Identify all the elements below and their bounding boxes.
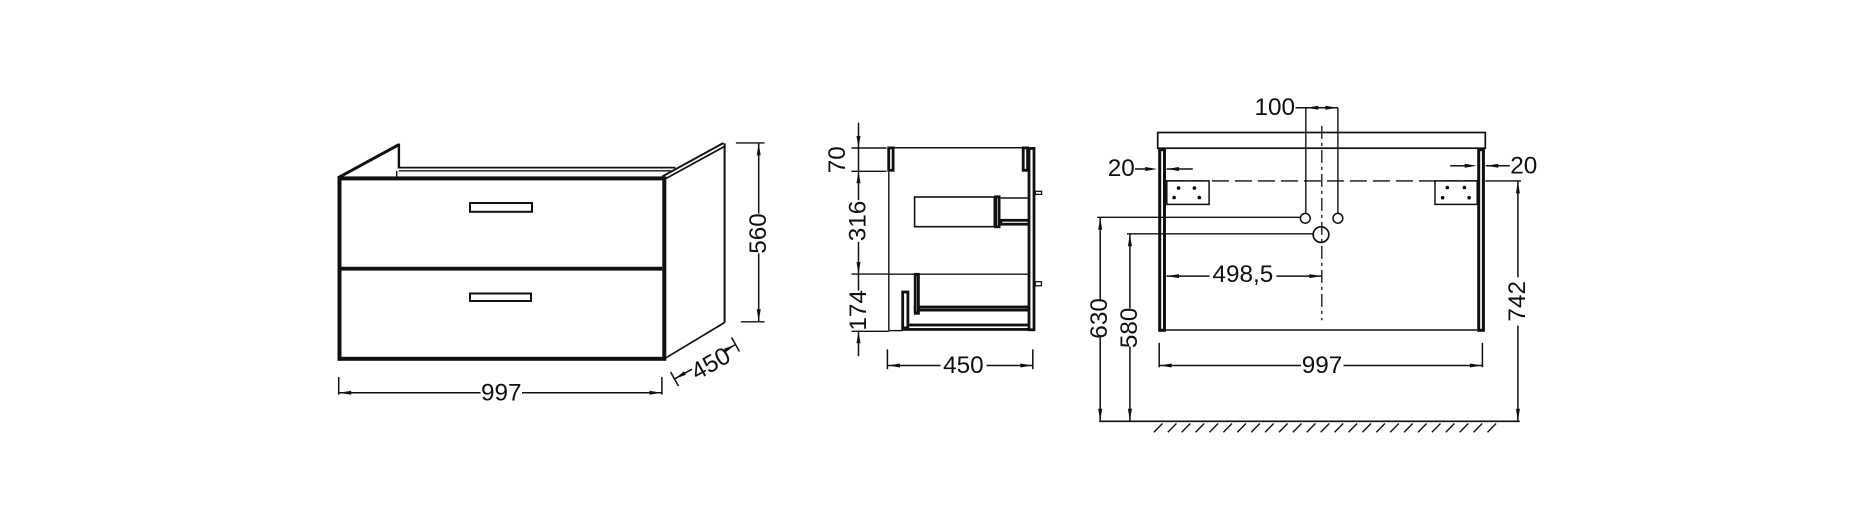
svg-text:70: 70 <box>824 146 851 173</box>
svg-text:630: 630 <box>1086 298 1113 339</box>
svg-text:560: 560 <box>745 213 772 254</box>
svg-text:580: 580 <box>1116 308 1143 349</box>
svg-text:20: 20 <box>1108 155 1135 182</box>
svg-text:100: 100 <box>1255 94 1296 121</box>
svg-text:20: 20 <box>1510 152 1537 179</box>
svg-text:997: 997 <box>1302 352 1343 379</box>
svg-text:174: 174 <box>845 290 872 331</box>
svg-text:450: 450 <box>943 352 984 379</box>
svg-text:316: 316 <box>845 201 872 242</box>
svg-text:498,5: 498,5 <box>1212 261 1273 288</box>
svg-text:742: 742 <box>1504 281 1531 322</box>
svg-text:997: 997 <box>481 379 522 406</box>
